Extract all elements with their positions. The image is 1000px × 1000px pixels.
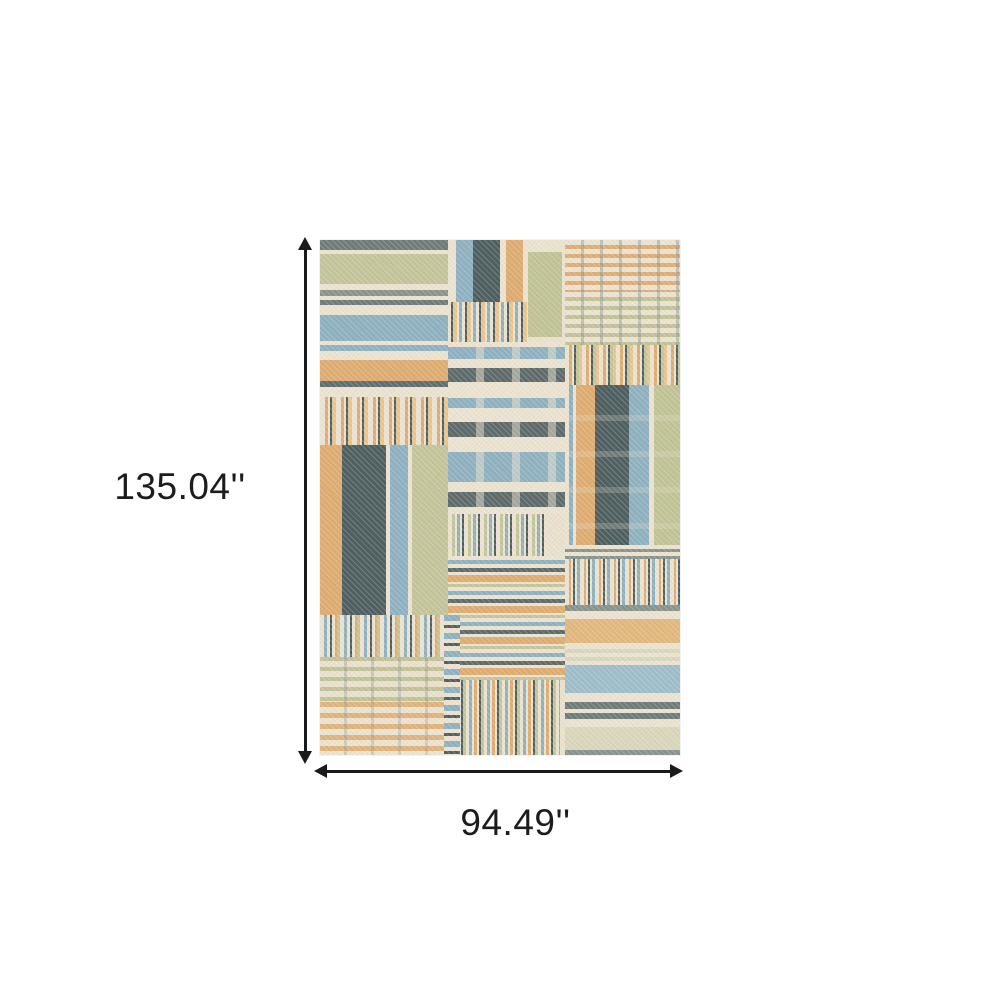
rug-patch-left-plaid-orange [320,702,444,755]
rug-patch-mid-green-block [528,252,562,337]
rug-patch-right-plaid-orange [565,240,680,292]
height-dimension-label: 135.04'' [70,467,290,508]
width-arrow-stem [319,770,678,773]
rug-patch-left-block [320,445,448,615]
rug-patch-right-fine-hrows [565,545,680,559]
width-dimension-label: 94.49'' [403,803,628,844]
rug-patch-mid-thin-vstripes-2 [448,514,545,556]
rug-patch-mid-dash-bars [448,342,565,514]
rug-patch-right-thin-vstripes [565,345,680,385]
height-dimension-arrow [297,237,313,764]
rug-patch-mid-fine-hrows [448,556,565,680]
rug-patch-right-block [565,385,680,545]
arrow-right-icon [670,764,683,778]
rug-patch-right-bottom-bands [565,605,680,755]
rug-patch-left-plaid-green [320,657,444,702]
rug-patch-left-thin-vstripes [320,397,448,445]
rug-patch-left-thin-vstripes-2 [320,615,444,657]
rug-patch-top-left-stripes [320,240,448,397]
rug-patch-mid-thin-vstripes [448,302,528,342]
width-dimension-arrow [314,763,683,779]
rug-patch-mid-bottom-vstripes [448,680,560,755]
rug-patch-left-mid-dash-strip [444,615,460,755]
rug-patch-right-thin-vstripes-2 [565,559,680,605]
rug-patch-right-plaid-green [565,292,680,345]
product-dimension-image: 135.04'' 94.49'' [0,0,1000,1000]
rug-image [320,240,680,755]
height-arrow-stem [304,242,307,759]
arrow-down-icon [298,751,312,764]
